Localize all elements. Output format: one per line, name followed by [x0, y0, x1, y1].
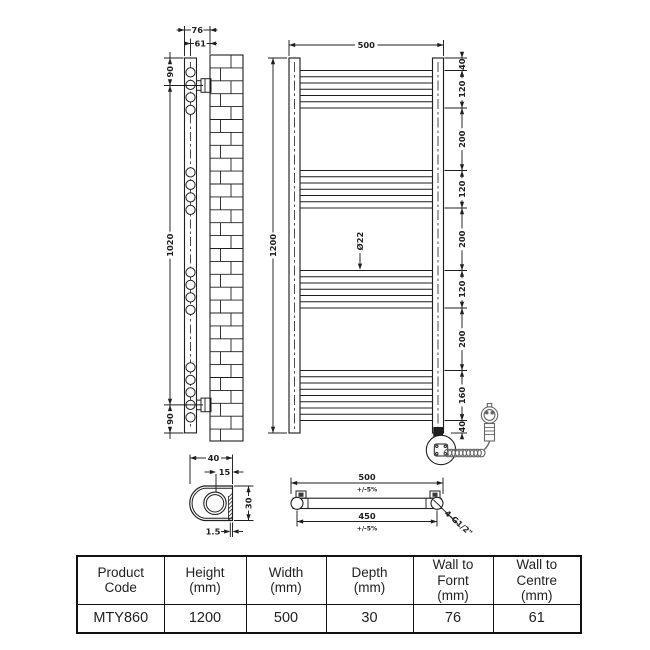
tube-end-circle — [186, 168, 195, 177]
dim-label: 120 — [457, 80, 467, 98]
dim-label: 200 — [457, 230, 467, 248]
tube-end-circle — [186, 268, 195, 277]
value-product-code: MTY860 — [77, 604, 164, 633]
value-height: 1200 — [164, 604, 246, 633]
dim-label: 1200 — [268, 234, 278, 257]
tube-end-circle — [186, 68, 195, 77]
dim-label: 30 — [244, 497, 254, 509]
tube-circle — [204, 492, 226, 514]
tube-end-circle — [186, 388, 195, 397]
technical-drawing: 7661901020905001200401202001202001202001… — [0, 0, 650, 650]
dim-label: 160 — [457, 387, 467, 405]
dim-label: 120 — [457, 180, 467, 198]
plan-view: 500+/-5%450+/-5%4-G1/2" — [291, 472, 474, 538]
dim-label: 500 — [358, 472, 376, 482]
value-depth: 30 — [326, 604, 413, 633]
tube-end-circle — [186, 205, 195, 214]
tube-end-circle — [186, 293, 195, 302]
side-view: 766190102090 — [164, 25, 243, 441]
value-wall-to-front: 76 — [413, 604, 493, 633]
dim-label: 120 — [457, 280, 467, 298]
tube-end-circle — [186, 105, 195, 114]
plan-bar — [293, 498, 441, 508]
tube-end-circle — [186, 80, 195, 89]
dim-label: 1.5 — [206, 527, 221, 537]
tube-end-circle — [186, 193, 195, 202]
dim-label: 200 — [457, 130, 467, 148]
tube-end-circle — [186, 363, 195, 372]
radiator-technical-drawing-page: 7661901020905001200401202001202001202001… — [0, 0, 650, 650]
dim-label: Ø22 — [355, 231, 365, 250]
dim-label: +/-5% — [357, 526, 378, 533]
spec-table: Product Code Height (mm) Width (mm) Dept… — [76, 555, 582, 634]
power-cable-and-plug — [444, 404, 497, 457]
brick-wall — [210, 55, 243, 441]
col-height: Height (mm) — [164, 556, 246, 604]
dim-label: 200 — [457, 330, 467, 348]
tube-end-circle — [186, 305, 195, 314]
col-wall-to-front: Wall to Fornt (mm) — [413, 556, 493, 604]
dim-label: 15 — [219, 467, 231, 477]
spec-table-data-row: MTY860 1200 500 30 76 61 — [77, 604, 581, 633]
dim-label: 500 — [358, 40, 376, 50]
col-product-code: Product Code — [77, 556, 164, 604]
value-wall-to-centre: 61 — [493, 604, 581, 633]
dim-label: 1020 — [165, 233, 175, 256]
dim-label: 61 — [195, 39, 207, 49]
col-depth: Depth (mm) — [326, 556, 413, 604]
profile-detail: 4015301.5 — [190, 453, 254, 537]
tube-end-circle — [186, 375, 195, 384]
dim-label: +/-5% — [357, 487, 378, 494]
dim-label: 76 — [192, 25, 204, 35]
dim-label: 40 — [457, 421, 467, 433]
front-view: 50012004012020012020012020016040Ø22 — [268, 40, 498, 465]
plan-connection-left — [291, 497, 303, 509]
dim-label: 90 — [165, 413, 175, 425]
tube-end-circle — [186, 180, 195, 189]
col-width: Width (mm) — [246, 556, 326, 604]
tube-end-circle — [186, 280, 195, 289]
tube-end-circle — [186, 413, 195, 422]
plug-stem — [485, 424, 495, 442]
dim-label: 40 — [457, 58, 467, 70]
value-width: 500 — [246, 604, 326, 633]
dim-label: 450 — [358, 511, 376, 521]
dim-label: 90 — [165, 66, 175, 78]
spec-table-header-row: Product Code Height (mm) Width (mm) Dept… — [77, 556, 581, 604]
col-wall-to-centre: Wall to Centre (mm) — [493, 556, 581, 604]
dim-label: 40 — [208, 453, 220, 463]
thread-label: 4-G1/2" — [443, 509, 474, 538]
tube-end-circle — [186, 93, 195, 102]
